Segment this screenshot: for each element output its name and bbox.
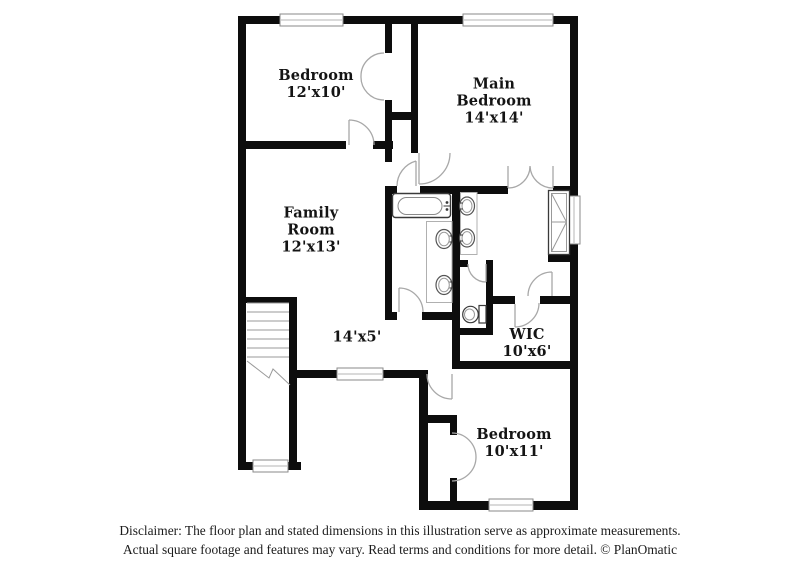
wall-closet-west-upper bbox=[385, 24, 392, 53]
disclaimer-line-2: Actual square footage and features may v… bbox=[0, 540, 800, 559]
room-dims: 10'x6' bbox=[503, 343, 552, 360]
wall-exterior-right bbox=[570, 16, 578, 510]
wall-stair-corridor-right bbox=[289, 298, 297, 470]
wall-wc-top-stub bbox=[460, 260, 468, 267]
room-dims: 12'x10' bbox=[278, 84, 353, 101]
door-bedroom2 bbox=[427, 374, 452, 399]
room-label-bedroom-bottom: Bedroom 10'x11' bbox=[476, 426, 551, 460]
door-shower-compartment bbox=[528, 272, 552, 296]
window-bedroom1-top bbox=[280, 14, 343, 26]
door-wic bbox=[515, 303, 539, 327]
toilet bbox=[463, 306, 486, 324]
room-name: Room bbox=[281, 221, 340, 238]
wall-closet-west-lower bbox=[385, 100, 392, 162]
vanity-right bbox=[460, 193, 478, 255]
window-bedroom2-bottom bbox=[489, 499, 533, 511]
room-dims: 14'x14' bbox=[456, 110, 531, 127]
room-name: Bedroom bbox=[278, 67, 353, 84]
wall-bedroom1-south-a bbox=[238, 141, 346, 149]
door-bathroom-bottom bbox=[399, 288, 423, 312]
room-label-wic: WIC 10'x6' bbox=[503, 326, 552, 360]
room-dims: 10'x11' bbox=[476, 443, 551, 460]
room-label-hall: 14'x5' bbox=[333, 328, 382, 345]
wall-bedroom2-west bbox=[419, 370, 428, 510]
bathtub bbox=[393, 194, 451, 218]
wall-exterior-left bbox=[238, 16, 246, 470]
room-name: Family bbox=[281, 204, 340, 221]
door-closet2-bifold bbox=[452, 433, 476, 481]
wall-wic-bottom bbox=[452, 361, 578, 369]
disclaimer-line-1: Disclaimer: The floor plan and stated di… bbox=[0, 521, 800, 540]
room-name: Main bbox=[456, 75, 531, 92]
staircase bbox=[247, 303, 290, 385]
window-hall-bottom bbox=[337, 368, 383, 380]
room-name: Bedroom bbox=[476, 426, 551, 443]
door-closet-double bbox=[361, 53, 384, 100]
door-ensuite-french bbox=[508, 166, 553, 188]
wall-bath-bottom-b bbox=[422, 312, 452, 320]
wall-wc-bottom bbox=[452, 328, 493, 335]
wall-bath-middle bbox=[452, 186, 460, 369]
wall-shower-bottom bbox=[548, 255, 570, 262]
door-bathroom-top bbox=[397, 161, 416, 186]
room-label-family-room: Family Room 12'x13' bbox=[281, 204, 340, 255]
wall-ensuite-wic-divider-b bbox=[540, 296, 578, 304]
window-main-bedroom-top bbox=[463, 14, 553, 26]
tub-faucet bbox=[446, 201, 449, 204]
room-label-main-bedroom: Main Bedroom 14'x14' bbox=[456, 75, 531, 126]
room-name: WIC bbox=[503, 326, 552, 343]
door-main-bedroom bbox=[419, 153, 450, 184]
wall-stair-top bbox=[246, 297, 297, 303]
room-dims: 14'x5' bbox=[333, 328, 382, 345]
room-label-bedroom-top: Bedroom 12'x10' bbox=[278, 67, 353, 101]
door-bedroom1 bbox=[349, 120, 374, 145]
window-stair-corridor-bottom bbox=[253, 460, 288, 472]
disclaimer: Disclaimer: The floor plan and stated di… bbox=[0, 521, 800, 559]
door-wc bbox=[468, 264, 486, 282]
wall-bath-bottom-a bbox=[385, 312, 397, 320]
wall-main-bedroom-west bbox=[411, 24, 418, 153]
floor-plan-page: Bedroom 12'x10' Main Bedroom 14'x14' Fam… bbox=[0, 0, 800, 582]
vanity-left bbox=[427, 222, 454, 303]
wall-bath-west bbox=[385, 186, 392, 320]
room-name: Bedroom bbox=[456, 92, 531, 109]
room-dims: 12'x13' bbox=[281, 239, 340, 256]
wall-ensuite-wic-divider-a bbox=[486, 296, 515, 304]
wall-closet2-top bbox=[428, 415, 457, 423]
stair-break-line bbox=[247, 361, 290, 385]
shower bbox=[549, 191, 570, 255]
floor-plan-drawing bbox=[0, 0, 800, 582]
